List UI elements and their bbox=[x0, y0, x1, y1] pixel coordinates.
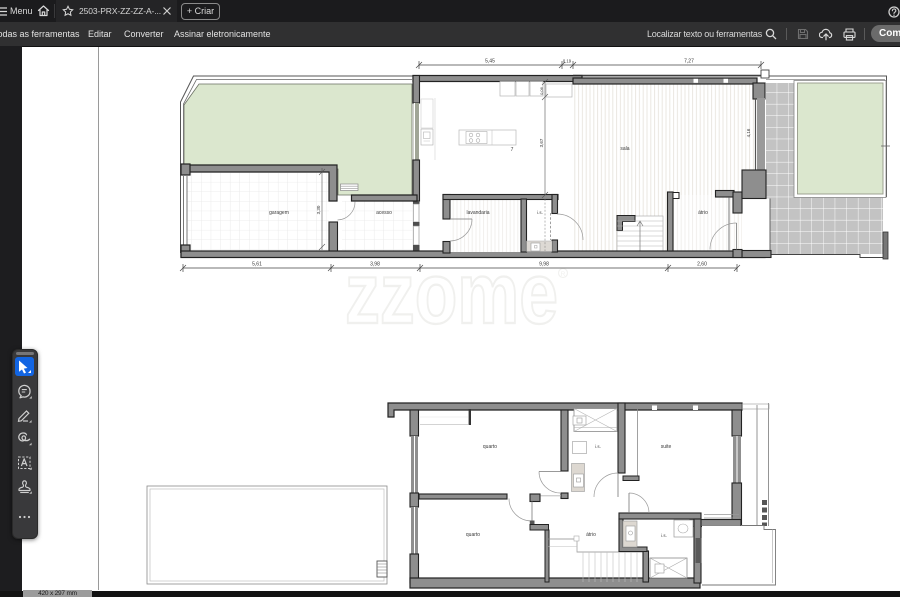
svg-text:zzome: zzome bbox=[345, 246, 558, 342]
svg-text:7,27: 7,27 bbox=[684, 59, 694, 65]
svg-text:7: 7 bbox=[511, 147, 514, 153]
svg-text:quarto: quarto bbox=[483, 444, 497, 450]
svg-text:i.s.: i.s. bbox=[595, 444, 601, 449]
svg-text:0,19: 0,19 bbox=[563, 59, 572, 64]
svg-text:9,98: 9,98 bbox=[539, 262, 549, 268]
svg-text:5,61: 5,61 bbox=[252, 262, 262, 268]
svg-text:sala: sala bbox=[620, 146, 629, 152]
svg-text:0,06: 0,06 bbox=[539, 86, 544, 95]
svg-text:átrio: átrio bbox=[698, 210, 708, 216]
svg-text:2,60: 2,60 bbox=[697, 262, 707, 268]
svg-text:3,30: 3,30 bbox=[316, 205, 321, 214]
svg-text:suite: suite bbox=[661, 444, 672, 450]
svg-text:quarto: quarto bbox=[466, 532, 480, 538]
svg-text:garagem: garagem bbox=[269, 210, 289, 216]
svg-text:R: R bbox=[561, 271, 566, 278]
svg-text:3,98: 3,98 bbox=[370, 262, 380, 268]
svg-text:3,67: 3,67 bbox=[539, 138, 544, 147]
svg-text:5,45: 5,45 bbox=[485, 59, 495, 65]
svg-text:átrio: átrio bbox=[586, 532, 596, 538]
svg-text:i.s.: i.s. bbox=[661, 533, 667, 538]
svg-text:i.s.: i.s. bbox=[537, 210, 543, 215]
svg-text:acesso: acesso bbox=[376, 210, 392, 216]
svg-text:4,16: 4,16 bbox=[746, 128, 751, 137]
svg-text:lavandaria: lavandaria bbox=[466, 210, 489, 216]
